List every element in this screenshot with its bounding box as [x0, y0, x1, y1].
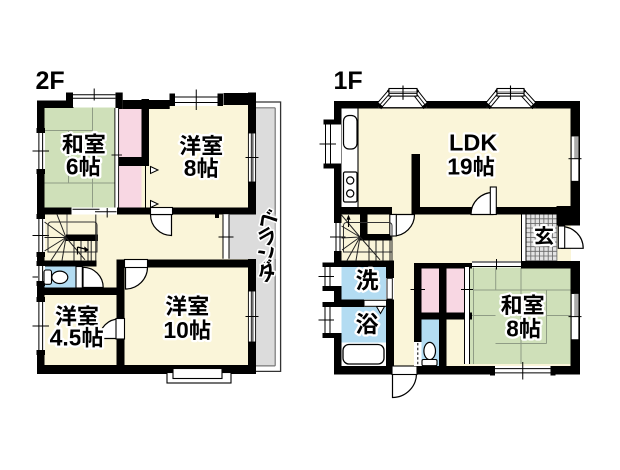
svg-text:8: 8	[506, 316, 519, 342]
svg-text:10: 10	[163, 317, 189, 343]
svg-text:6: 6	[66, 154, 79, 180]
svg-text:8: 8	[184, 155, 197, 181]
svg-text:19: 19	[447, 154, 473, 180]
svg-text:4.5: 4.5	[50, 325, 82, 351]
svg-text:2F: 2F	[36, 67, 65, 95]
svg-text:LDK: LDK	[449, 130, 497, 156]
svg-text:1F: 1F	[334, 67, 363, 95]
